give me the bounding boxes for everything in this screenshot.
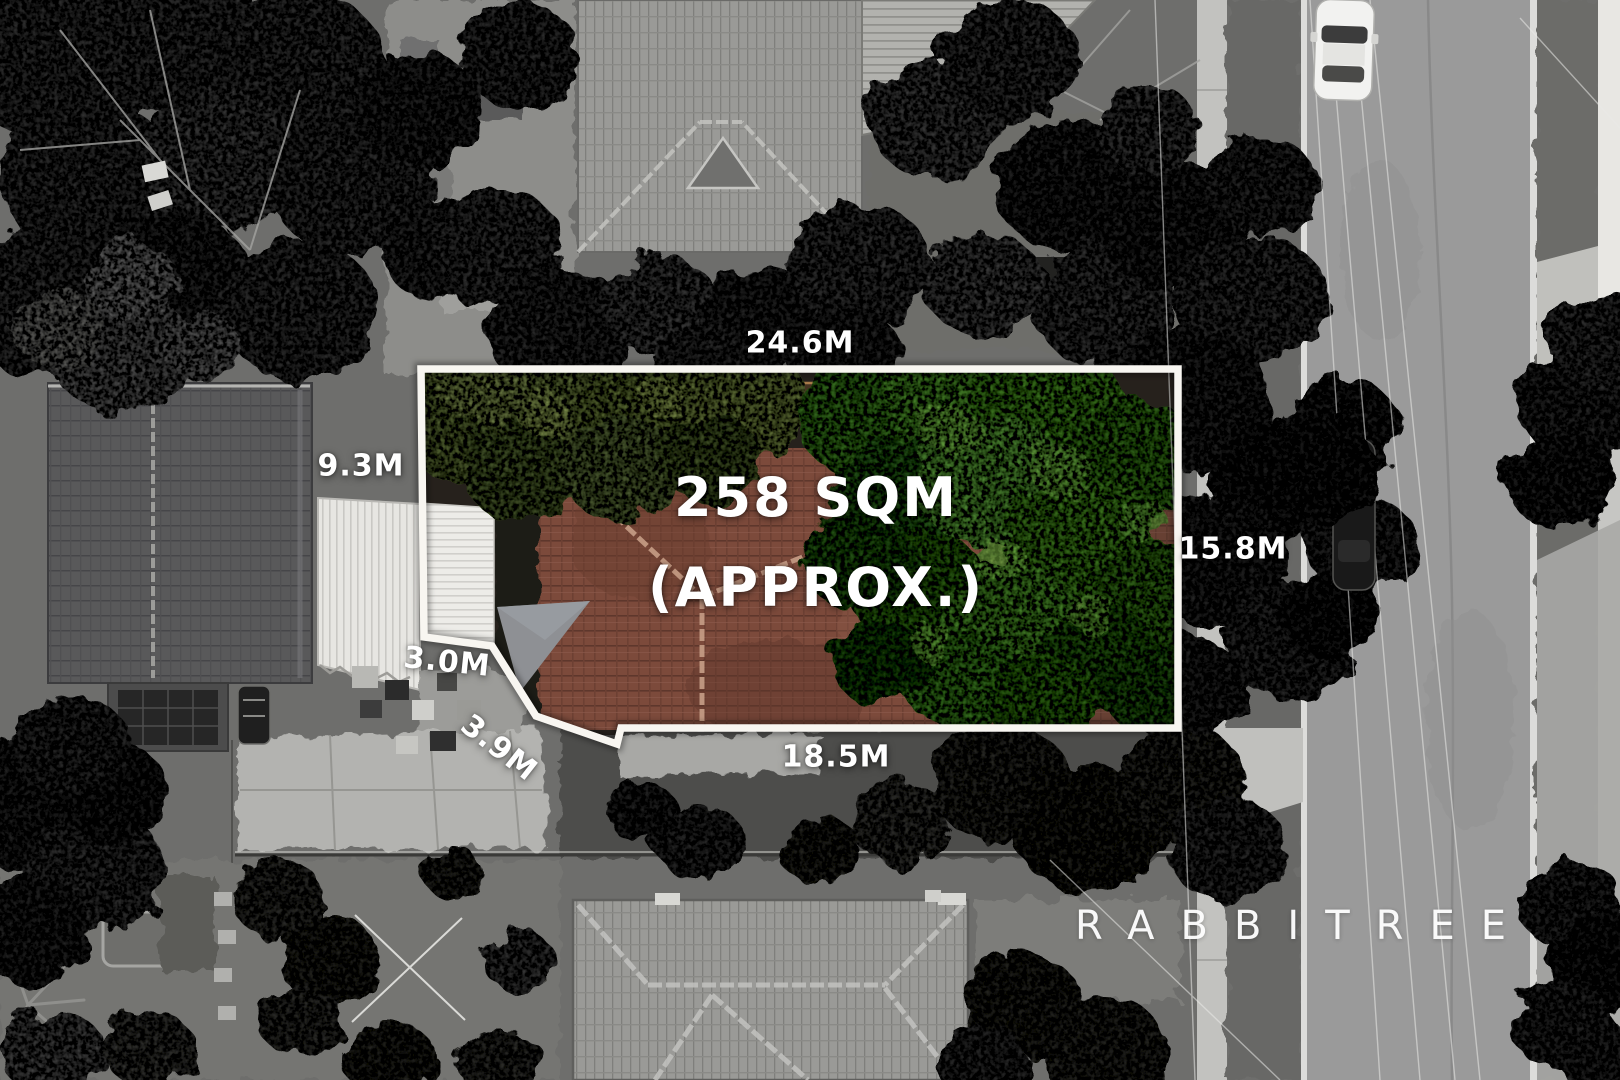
area-label: 258 SQM (APPROX.) <box>648 453 984 633</box>
dimension-left: 9.3M <box>318 449 405 484</box>
tree-over-car <box>1282 414 1378 526</box>
white-car <box>1308 0 1379 101</box>
dimension-bottom: 18.5M <box>782 740 891 775</box>
aerial-photo: 24.6M 9.3M 15.8M 18.5M 3.0M 3.9M 258 SQM… <box>0 0 1620 1080</box>
dimension-top: 24.6M <box>746 326 855 361</box>
area-label-line2: (APPROX.) <box>648 543 984 633</box>
watermark: RABBITREE <box>1075 903 1532 949</box>
area-label-line1: 258 SQM <box>648 453 984 543</box>
neighbor-house-bottom <box>573 890 968 1080</box>
dimension-right: 15.8M <box>1179 532 1288 567</box>
